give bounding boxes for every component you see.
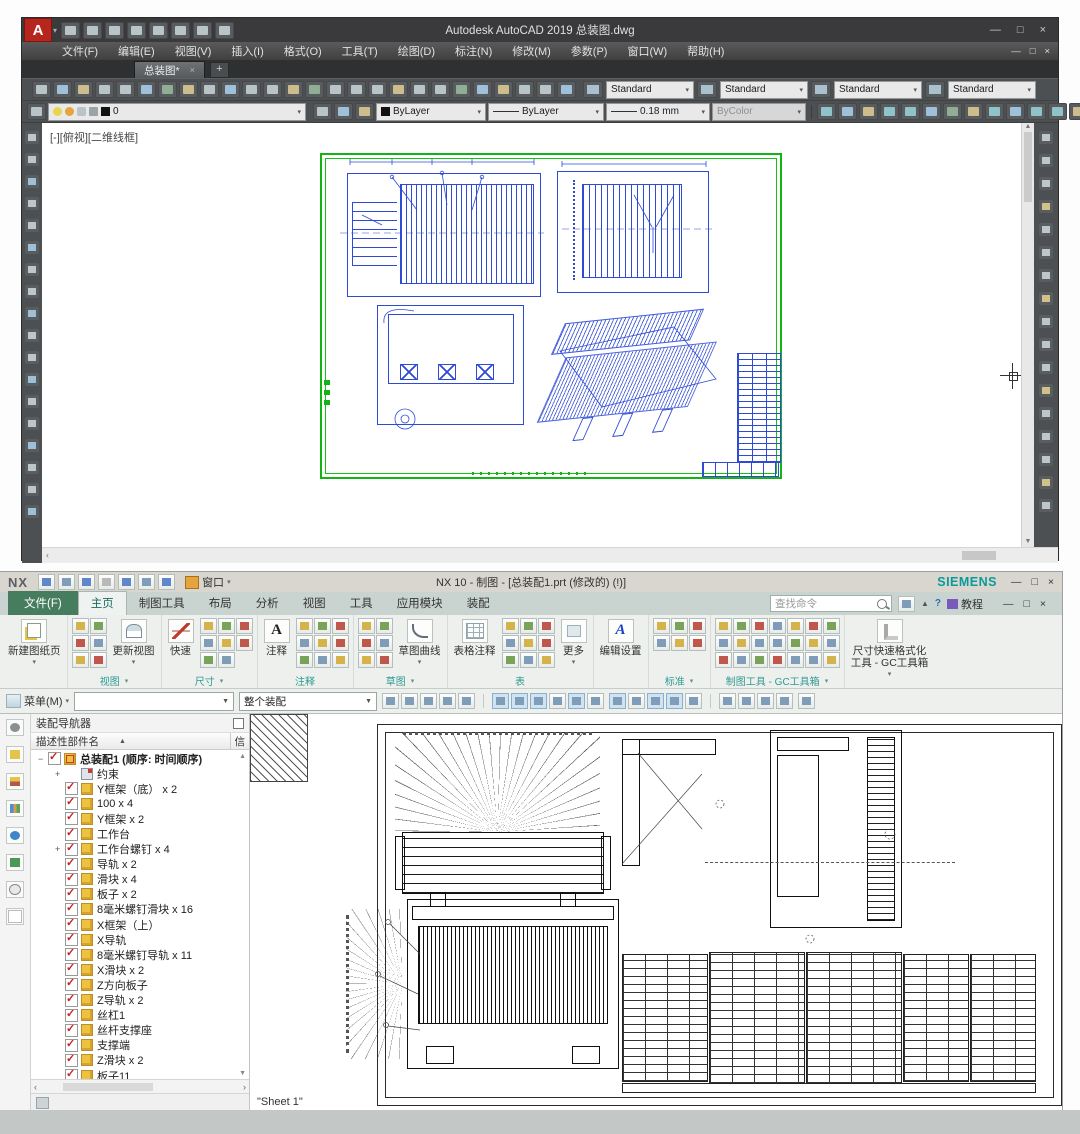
menu-item[interactable]: 工具(T)	[332, 43, 388, 59]
tree-item[interactable]: + 支撑端	[31, 1038, 249, 1053]
drawing-scale-icon[interactable]	[689, 618, 706, 634]
gc-tool-icon[interactable]	[751, 635, 768, 651]
ellipse-icon[interactable]	[25, 329, 39, 342]
maximize-button[interactable]: □	[1017, 24, 1024, 36]
paste-icon[interactable]	[138, 574, 155, 590]
scale-icon[interactable]	[1039, 292, 1053, 305]
scrollbar-thumb[interactable]	[1024, 132, 1032, 202]
scroll-left-icon[interactable]: ‹	[46, 550, 49, 560]
snap-point-icon[interactable]	[401, 693, 418, 709]
break-at-point-icon[interactable]	[1039, 384, 1053, 397]
tree-item[interactable]: + Y框架 x 2	[31, 811, 249, 826]
collapse-icon[interactable]: −	[38, 754, 48, 764]
undo-icon[interactable]	[171, 22, 190, 39]
curve-snap-icon[interactable]	[568, 693, 585, 709]
tile-windows-icon[interactable]	[757, 693, 774, 709]
menu-item[interactable]: 绘图(D)	[388, 43, 445, 59]
arc-icon[interactable]	[358, 635, 375, 651]
new-sheet-button[interactable]: 新建图纸页▾	[6, 618, 63, 668]
checkbox[interactable]	[65, 1069, 78, 1079]
save-icon[interactable]	[105, 22, 124, 39]
more-button[interactable]: 更多▾	[559, 618, 589, 668]
arc-icon[interactable]	[25, 241, 39, 254]
table-style-icon[interactable]	[811, 81, 831, 98]
arc-length-dim-icon[interactable]	[236, 635, 253, 651]
layer-thaw-icon[interactable]	[65, 107, 74, 116]
color-combo[interactable]: ByLayer▾	[376, 103, 486, 121]
feature-control-frame-icon[interactable]	[296, 618, 313, 634]
help-icon[interactable]	[536, 81, 555, 98]
selection-filter-combo[interactable]: ▼	[74, 692, 234, 711]
sheet-tab-label[interactable]: "Sheet 1"	[257, 1096, 303, 1108]
ribbon-tab[interactable]: 分析	[244, 591, 291, 615]
checkbox[interactable]	[65, 828, 78, 841]
expand-icon[interactable]: +	[55, 769, 65, 779]
rectangle-icon[interactable]	[376, 652, 393, 668]
revision-table-icon[interactable]	[689, 635, 706, 651]
save-icon[interactable]	[38, 574, 55, 590]
datum-feature-icon[interactable]	[314, 618, 331, 634]
tool-palettes-icon[interactable]	[452, 81, 471, 98]
gc-tool-icon[interactable]	[823, 618, 840, 634]
menu-item[interactable]: 帮助(H)	[677, 43, 734, 59]
tree-item[interactable]: + 工作台	[31, 826, 249, 841]
design-center-icon[interactable]	[431, 81, 450, 98]
circle-icon[interactable]	[376, 635, 393, 651]
tree-item[interactable]: + 8毫米螺钉滑块 x 16	[31, 902, 249, 917]
gc-select-icon[interactable]	[685, 693, 702, 709]
thickness-dim-icon[interactable]	[218, 635, 235, 651]
save-icon[interactable]	[74, 81, 93, 98]
customize-icon[interactable]	[215, 22, 234, 39]
layer-lock-icon[interactable]	[89, 107, 98, 116]
gc-tool-icon[interactable]	[733, 635, 750, 651]
gc-tool-icon[interactable]	[823, 635, 840, 651]
minimize-button[interactable]: —	[1011, 576, 1022, 588]
menu-item[interactable]: 格式(O)	[274, 43, 332, 59]
tree-item[interactable]: + 丝杠1	[31, 1008, 249, 1023]
gc-tool-icon[interactable]	[715, 652, 732, 668]
center-snap-icon[interactable]	[609, 693, 626, 709]
checkbox[interactable]	[65, 843, 78, 856]
match-properties-icon[interactable]	[179, 81, 198, 98]
nx-drawing-canvas[interactable]: "Sheet 1"	[250, 714, 1062, 1112]
autocad-logo-icon[interactable]: A	[24, 18, 52, 42]
zoom-realtime-icon[interactable]	[347, 81, 366, 98]
table-icon[interactable]	[25, 483, 39, 496]
centerline-icon[interactable]	[314, 652, 331, 668]
open-icon[interactable]	[53, 81, 72, 98]
selection-filter-icon[interactable]	[382, 693, 399, 709]
match-layer-icon[interactable]	[334, 103, 353, 120]
spline-icon[interactable]	[25, 307, 39, 320]
float-window-icon[interactable]	[738, 693, 755, 709]
hole-table-icon[interactable]	[520, 618, 537, 634]
quick-calc-icon[interactable]	[515, 81, 534, 98]
tutorial-button[interactable]: 教程	[947, 596, 983, 612]
mdi-close-button[interactable]: ×	[1044, 46, 1050, 57]
gc-tool-icon[interactable]	[787, 618, 804, 634]
surface-finish-icon[interactable]	[296, 635, 313, 651]
gc-tool-icon[interactable]	[805, 635, 822, 651]
tree-item[interactable]: + 约束	[31, 766, 249, 781]
explode-icon[interactable]	[1039, 499, 1053, 512]
gc-tool-icon[interactable]	[733, 652, 750, 668]
panel-pin-icon[interactable]	[233, 718, 244, 729]
mdi-minimize-button[interactable]: —	[1011, 46, 1021, 57]
viewport-label[interactable]: [-][俯视][二维线框]	[50, 129, 138, 145]
gc-tool-icon[interactable]	[805, 652, 822, 668]
checkbox[interactable]	[65, 812, 78, 825]
restore-button[interactable]: □	[1032, 576, 1038, 588]
copy-base-icon[interactable]	[242, 81, 261, 98]
tree-item[interactable]: + Z导轨 x 2	[31, 993, 249, 1008]
annotation-style-icon[interactable]	[557, 81, 576, 98]
layer-combo[interactable]: 0 ▾	[48, 103, 306, 121]
checkbox[interactable]	[65, 1054, 78, 1067]
join-icon[interactable]	[1039, 430, 1053, 443]
detail-view-icon[interactable]	[90, 635, 107, 651]
make-current-icon[interactable]	[313, 103, 332, 120]
navigator-options-icon[interactable]	[6, 719, 24, 736]
crosshatch-icon[interactable]	[332, 652, 349, 668]
gc-tool-icon[interactable]	[769, 635, 786, 651]
help-icon[interactable]: ?	[935, 598, 941, 609]
multiline-text-icon[interactable]	[25, 505, 39, 518]
rect-select-icon[interactable]	[458, 693, 475, 709]
part-navigator-icon[interactable]	[6, 800, 24, 817]
autocad-drawing-canvas[interactable]: [-][俯视][二维线框]	[42, 123, 1021, 547]
mirror-icon[interactable]	[1039, 177, 1053, 190]
edit-settings-button[interactable]: 编辑设置	[598, 618, 644, 658]
hatch-icon[interactable]	[25, 417, 39, 430]
gc-tool-icon[interactable]	[787, 635, 804, 651]
checkbox[interactable]	[65, 903, 78, 916]
gradient-icon[interactable]	[25, 439, 39, 452]
close-button[interactable]: ×	[1048, 576, 1054, 588]
copy-icon[interactable]	[1039, 154, 1053, 167]
ordinate-dim-icon[interactable]	[200, 652, 217, 668]
base-view-icon[interactable]	[90, 618, 107, 634]
jogged-dim-icon[interactable]	[922, 103, 941, 120]
angular-dim-icon[interactable]	[964, 103, 983, 120]
zoom-window-icon[interactable]	[368, 81, 387, 98]
tree-item[interactable]: + 导轨 x 2	[31, 857, 249, 872]
ribbon-tab[interactable]: 工具	[338, 591, 385, 615]
close-button[interactable]: ×	[1040, 24, 1046, 36]
offset-icon[interactable]	[1039, 200, 1053, 213]
projected-view-icon[interactable]	[72, 635, 89, 651]
selection-scope-combo[interactable]: 整个装配▼	[239, 692, 377, 711]
ribbon-tab[interactable]: 主页	[78, 591, 127, 615]
gc-tool-icon[interactable]	[769, 652, 786, 668]
baseline-dim-icon[interactable]	[1006, 103, 1025, 120]
fillet-icon[interactable]	[1039, 476, 1053, 489]
tabular-note-icon[interactable]	[520, 635, 537, 651]
navigator-horizontal-scrollbar[interactable]: ‹ ›	[31, 1079, 249, 1093]
scroll-up-icon[interactable]: ▲	[1025, 123, 1032, 130]
hole-callout-icon[interactable]	[218, 652, 235, 668]
update-view-button[interactable]: 更新视图▾	[111, 618, 157, 668]
menu-item[interactable]: 修改(M)	[502, 43, 561, 59]
gc-tool-icon[interactable]	[715, 618, 732, 634]
spline-snap-icon[interactable]	[549, 693, 566, 709]
cursor-snap-icon[interactable]	[587, 693, 604, 709]
checkbox[interactable]	[65, 1039, 78, 1052]
extend-icon[interactable]	[1039, 361, 1053, 374]
tree-item[interactable]: + 板子11	[31, 1068, 249, 1079]
history-icon[interactable]	[6, 881, 24, 898]
plus-snap-icon[interactable]	[647, 693, 664, 709]
tree-root-row[interactable]: − 总装配1 (顺序: 时间顺序)	[31, 751, 249, 766]
vertical-scrollbar[interactable]: ▲ ▼	[1021, 123, 1034, 547]
document-tab[interactable]: 总装图* ×	[134, 61, 205, 78]
tree-item[interactable]: + X框架（上）	[31, 917, 249, 932]
print-icon[interactable]	[95, 81, 114, 98]
checkbox[interactable]	[65, 797, 78, 810]
deselect-icon[interactable]	[420, 693, 437, 709]
note-button[interactable]: 注释	[262, 618, 292, 658]
cut-icon[interactable]	[98, 574, 115, 590]
checkbox[interactable]	[65, 888, 78, 901]
scroll-left-icon[interactable]: ‹	[34, 1082, 37, 1092]
tree-scroll-up-icon[interactable]: ▲	[239, 753, 246, 760]
linear-dim-icon[interactable]	[200, 618, 217, 634]
undo-icon[interactable]	[58, 574, 75, 590]
circle-snap-icon[interactable]	[628, 693, 645, 709]
style-combo[interactable]: Standard▾	[834, 81, 922, 99]
ribbon-tab[interactable]: 应用模块	[385, 591, 455, 615]
sheet-set-manager-icon[interactable]	[473, 81, 492, 98]
dim-break-icon[interactable]	[1069, 103, 1080, 120]
checkbox[interactable]	[65, 1009, 78, 1022]
ordinate-dim-icon[interactable]	[880, 103, 899, 120]
minimize-ribbon-icon[interactable]: ▲	[921, 599, 929, 608]
edit-table-icon[interactable]	[538, 652, 555, 668]
checkbox[interactable]	[65, 948, 78, 961]
weld-symbol-icon[interactable]	[314, 635, 331, 651]
point-icon[interactable]	[25, 395, 39, 408]
tab-close-icon[interactable]: ×	[190, 65, 195, 75]
menu-item[interactable]: 视图(V)	[165, 43, 222, 59]
zoom-previous-icon[interactable]	[389, 81, 408, 98]
lineweight-combo[interactable]: 0.18 mm▾	[606, 103, 710, 121]
redo-icon[interactable]	[305, 81, 324, 98]
radial-dim-icon[interactable]	[218, 618, 235, 634]
rapid-dimension-button[interactable]: 快速	[166, 618, 196, 658]
redo-icon[interactable]	[78, 574, 95, 590]
sort-arrow-icon[interactable]: ▲	[119, 738, 126, 745]
revision-cloud-icon[interactable]	[25, 285, 39, 298]
stretch-icon[interactable]	[1039, 315, 1053, 328]
parts-list-icon[interactable]	[502, 618, 519, 634]
reuse-library-icon[interactable]	[6, 854, 24, 871]
copy-icon[interactable]	[118, 574, 135, 590]
gc-tool-icon[interactable]	[751, 652, 768, 668]
menu-item[interactable]: 插入(I)	[221, 43, 273, 59]
linetype-combo[interactable]: ByLayer▾	[488, 103, 604, 121]
section-view-icon[interactable]	[72, 652, 89, 668]
constraint-navigator-icon[interactable]	[6, 773, 24, 790]
gc-tool-icon[interactable]	[733, 618, 750, 634]
polygon-icon[interactable]	[25, 197, 39, 210]
tabular-note-button[interactable]: 表格注释	[452, 618, 498, 658]
checkbox[interactable]	[48, 752, 61, 765]
info-column-header[interactable]: 信	[230, 733, 250, 749]
assembly-navigator-icon[interactable]	[6, 746, 24, 763]
menu-item[interactable]: 编辑(E)	[108, 43, 165, 59]
tree-item[interactable]: + 板子 x 2	[31, 887, 249, 902]
quick-dim-icon[interactable]	[985, 103, 1004, 120]
mdi-restore-button[interactable]: □	[1030, 46, 1036, 57]
ribbon-tab[interactable]: 布局	[197, 591, 244, 615]
paste-block-icon[interactable]	[263, 81, 282, 98]
endpoint-snap-icon[interactable]	[511, 693, 528, 709]
tree-scroll-down-icon[interactable]: ▼	[239, 1070, 246, 1077]
checkbox[interactable]	[65, 994, 78, 1007]
frame-format-icon[interactable]	[671, 635, 688, 651]
new-icon[interactable]	[61, 22, 80, 39]
save-as-icon[interactable]	[127, 22, 146, 39]
plot-icon[interactable]	[137, 81, 156, 98]
tree-item[interactable]: + Z方向板子	[31, 977, 249, 992]
text-style-icon[interactable]	[583, 81, 603, 98]
window-menu-button[interactable]: 窗口▾	[185, 574, 231, 590]
slash-snap-icon[interactable]	[666, 693, 683, 709]
style-combo[interactable]: Standard▾	[948, 81, 1036, 99]
continue-dim-icon[interactable]	[1027, 103, 1046, 120]
snap-toggle-icon[interactable]	[492, 693, 509, 709]
horizontal-scrollbar[interactable]: ‹	[42, 547, 1058, 563]
ribbon-tab[interactable]: 装配	[455, 591, 502, 615]
mleader-style-icon[interactable]	[925, 81, 945, 98]
tree-item[interactable]: + Y框架（底） x 2	[31, 781, 249, 796]
plot-icon[interactable]	[149, 22, 168, 39]
gc-dimension-format-button[interactable]: 尺寸快速格式化工具 - GC工具箱▾	[849, 618, 931, 680]
tab-file[interactable]: 文件(F)	[8, 591, 78, 615]
gc-tool-icon[interactable]	[787, 652, 804, 668]
ribbon-tab[interactable]: 视图	[291, 591, 338, 615]
construction-line-icon[interactable]	[25, 153, 39, 166]
gc-tool-icon[interactable]	[715, 635, 732, 651]
new-tab-button[interactable]: +	[210, 62, 229, 78]
sketch-curve-button[interactable]: 草图曲线▾	[397, 618, 443, 668]
line-icon[interactable]	[376, 618, 393, 634]
menu-item[interactable]: 参数(P)	[561, 43, 618, 59]
break-view-icon[interactable]	[90, 652, 107, 668]
sort-parts-list-icon[interactable]	[502, 652, 519, 668]
pan-icon[interactable]	[326, 81, 345, 98]
export-table-icon[interactable]	[520, 652, 537, 668]
redo-icon[interactable]	[193, 22, 212, 39]
annotation-tool-icon[interactable]	[798, 693, 815, 709]
tree-item[interactable]: + X滑块 x 2	[31, 962, 249, 977]
update-parts-list-icon[interactable]	[538, 635, 555, 651]
tree-item[interactable]: + 100 x 4	[31, 796, 249, 811]
checkbox[interactable]	[65, 963, 78, 976]
menu-item[interactable]: 文件(F)	[52, 43, 108, 59]
arc-length-dim-icon[interactable]	[859, 103, 878, 120]
style-combo[interactable]: Standard▾	[606, 81, 694, 99]
scrollbar-thumb[interactable]	[962, 551, 996, 560]
insert-block-icon[interactable]	[25, 351, 39, 364]
balloon-icon[interactable]	[332, 618, 349, 634]
markup-icon[interactable]	[494, 81, 513, 98]
checkbox[interactable]	[65, 933, 78, 946]
copy-clip-icon[interactable]	[200, 81, 219, 98]
properties-palette-icon[interactable]	[410, 81, 429, 98]
navigator-column-header[interactable]: 描述性部件名 ▲ 信	[31, 733, 249, 750]
publish-icon[interactable]	[158, 81, 177, 98]
layer-properties-icon[interactable]	[27, 103, 46, 120]
polyline-icon[interactable]	[25, 175, 39, 188]
break-icon[interactable]	[1039, 407, 1053, 420]
radius-dim-icon[interactable]	[901, 103, 920, 120]
rotate-icon[interactable]	[1039, 269, 1053, 282]
logo-dropdown-icon[interactable]: ▾	[53, 26, 57, 35]
cascade-windows-icon[interactable]	[719, 693, 736, 709]
make-block-icon[interactable]	[25, 373, 39, 386]
tree-item[interactable]: + X导轨	[31, 932, 249, 947]
view-wizard-icon[interactable]	[72, 618, 89, 634]
tree-item[interactable]: + 丝杆支撑座	[31, 1023, 249, 1038]
style-combo[interactable]: Standard▾	[720, 81, 808, 99]
fillet-icon[interactable]	[358, 652, 375, 668]
menu-button[interactable]: 菜单(M)▾	[6, 693, 69, 709]
minimize-button[interactable]: —	[990, 24, 1001, 36]
erase-icon[interactable]	[1039, 131, 1053, 144]
move-icon[interactable]	[1039, 246, 1053, 259]
checkbox[interactable]	[65, 1024, 78, 1037]
line-icon[interactable]	[25, 131, 39, 144]
gc-tool-icon[interactable]	[751, 618, 768, 634]
bend-table-icon[interactable]	[538, 618, 555, 634]
print-preview-icon[interactable]	[116, 81, 135, 98]
checkbox[interactable]	[65, 918, 78, 931]
tree-item[interactable]: + 滑块 x 4	[31, 872, 249, 887]
ribbon-tab[interactable]: 制图工具	[127, 591, 197, 615]
layer-on-icon[interactable]	[53, 107, 62, 116]
open-icon[interactable]	[83, 22, 102, 39]
checkbox[interactable]	[65, 873, 78, 886]
tree-item[interactable]: + 8毫米螺钉导轨 x 11	[31, 947, 249, 962]
checkbox[interactable]	[65, 782, 78, 795]
layer-freeze-icon[interactable]	[77, 107, 86, 116]
command-search-input[interactable]: 查找命令	[770, 595, 892, 612]
roles-icon[interactable]	[6, 908, 24, 925]
aligned-dim-icon[interactable]	[838, 103, 857, 120]
menu-item[interactable]: 标注(N)	[445, 43, 502, 59]
gc-tool-icon[interactable]	[805, 618, 822, 634]
repaint-icon[interactable]	[158, 574, 175, 590]
target-point-icon[interactable]	[332, 635, 349, 651]
circle-icon[interactable]	[25, 263, 39, 276]
rectangle-icon[interactable]	[25, 219, 39, 232]
shortcut-toolbar-icon[interactable]	[776, 693, 793, 709]
gb-standard-icon[interactable]	[653, 618, 670, 634]
scroll-down-icon[interactable]: ▼	[1025, 538, 1032, 545]
checkbox[interactable]	[65, 978, 78, 991]
gallery-icon[interactable]	[898, 596, 915, 612]
tree-item[interactable]: + Z滑块 x 2	[31, 1053, 249, 1068]
auto-balloon-icon[interactable]	[502, 635, 519, 651]
checkbox[interactable]	[65, 858, 78, 871]
intersection-symbol-icon[interactable]	[296, 652, 313, 668]
array-icon[interactable]	[1039, 223, 1053, 236]
new-icon[interactable]	[32, 81, 51, 98]
gc-tool-icon[interactable]	[823, 652, 840, 668]
region-icon[interactable]	[25, 461, 39, 474]
